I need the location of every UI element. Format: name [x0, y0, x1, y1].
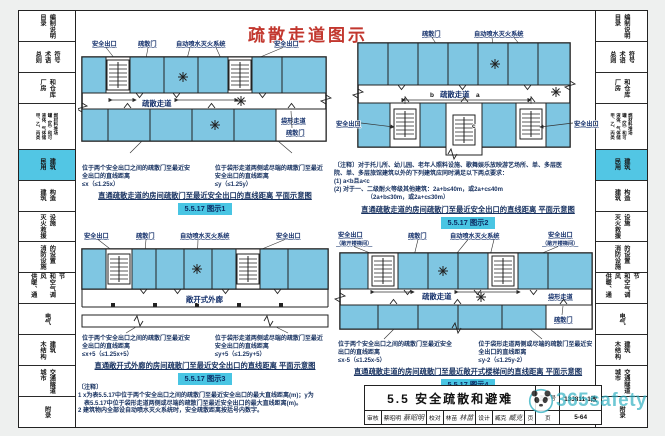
sidebar-tab: 电气 [19, 304, 75, 335]
figure-caption: 直通敞开式外廊的房间疏散门至最近安全出口的直线距离 平面示意图 [78, 361, 332, 371]
sheet-body: 疏散走道图示 安全出口 疏散门 自动喷水灭火系统 安全出口 [76, 11, 595, 427]
sidebar-tab-label: 甲、乙、丙类 液体、气体储 罐（区）和可 燃材料堆场 [610, 113, 634, 139]
sprinkler-icon [178, 72, 188, 82]
sprinkler-label: 自动喷水灭火系统 [474, 30, 524, 38]
sidebar-tab: 城市 交通隧道 [19, 366, 75, 397]
figure-4: 安全出口 （敞开楼梯间） 疏散门 自动喷水灭火系统 安全出口 （敞开楼梯间） [334, 229, 602, 391]
design-name: 臧克臧克 [493, 411, 526, 424]
sidebar-tab-label: 民用 建筑 [612, 158, 631, 170]
evac-door-label: 疏散门 [422, 30, 441, 38]
design-label: 设计 [476, 411, 493, 424]
sidebar-tab: 厂房 和仓库 [19, 73, 75, 104]
figure-4-plan: 安全出口 （敞开楼梯间） 疏散门 自动喷水灭火系统 安全出口 （敞开楼梯间） [334, 229, 602, 341]
design-signature: 臧克 [508, 413, 522, 423]
corridor-label: 疏散走道 [142, 99, 172, 108]
review-label: 审核 [365, 411, 382, 424]
evac-door-label: 疏散门 [554, 316, 573, 324]
sidebar-tab: 木结构 建筑 [19, 335, 75, 366]
sidebar-tab: 灭火救援 设施 [596, 212, 647, 243]
document-frame: 目录 编制说明 总则 术语 符号 厂房 和仓库 甲、乙、丙类 液体、气体储 罐（… [18, 10, 648, 428]
safe-exit-label: 安全出口 [574, 120, 599, 128]
figure-2: 疏散门 自动喷水灭火系统 [334, 27, 602, 229]
figure-3-plan: 安全出口 疏散门 自动喷水灭火系统 安全出口 [78, 229, 332, 335]
sidebar-tab: 目录 编制说明 [596, 11, 647, 42]
sidebar-tab: 厂房 和仓库 [596, 73, 647, 104]
sidebar-tab: 甲、乙、丙类 液体、气体储 罐（区）和可 燃材料堆场 [19, 104, 75, 150]
callout-right: 位于袋形走道两侧或尽端的疏散门至最近安全出口的直线距离 ≤y（≤1.25y） [215, 166, 328, 189]
sprinkler-label: 自动喷水灭火系统 [176, 40, 226, 48]
stair-icon [394, 109, 416, 139]
callout-left: 位于两个安全出口之间的疏散门至最近安全出口的直线距离 ≤x+5（≤1.25x+5… [82, 336, 195, 359]
check-label: 校对 [427, 411, 444, 424]
sprinkler-icon [192, 264, 202, 274]
stair-icon [237, 254, 259, 284]
review-signature: 蔡昭明 [403, 413, 424, 423]
sidebar-tab: 消防设施 的设置 [19, 242, 75, 273]
evac-door-label: 疏散门 [286, 129, 305, 137]
sidebar-tab-label: 供暖、通风 和空气调节 [28, 273, 65, 303]
sidebar-right: 目录 编制说明 总则 术语 符号 厂房 和仓库 甲、乙、丙类 液体、气体储 罐（… [595, 11, 647, 427]
callout-left: 位于两个安全出口之间的疏散门至最近安全出口的直线距离 ≤x（≤1.25x） [82, 166, 195, 189]
figure-caption: 直通疏散走道的房间疏散门至最近安全出口的直线距离 平面示意图 [334, 205, 602, 215]
callout-left: 位于两个安全出口之间的疏散门至最近安全出口的直线距离 ≤x-5（≤1.25x-5… [338, 342, 458, 365]
dead-end-label: 袋形走道 [280, 117, 307, 125]
evac-door-label: 疏散门 [408, 232, 427, 240]
sidebar-tab: 总则 术语 符号 [596, 42, 647, 73]
safe-exit-label: 安全出口 [84, 232, 109, 240]
figure-2-note: 〔注释〕对于托儿所、幼儿园、老年人照料设施、歌舞娱乐放映游艺场所、单、多层医 院… [334, 163, 602, 203]
safe-exit-label: 安全出口 [336, 120, 361, 128]
sidebar-tab-label: 总则 术语 符号 [33, 51, 61, 63]
sidebar-tab-label: 灭火救援 设施 [38, 214, 57, 239]
sidebar-tab-label: 附录 [42, 406, 51, 418]
sprinkler-icon [438, 266, 448, 276]
sidebar-left: 目录 编制说明 总则 术语 符号 厂房 和仓库 甲、乙、丙类 液体、气体储 罐（… [19, 11, 76, 427]
sidebar-tab: 木结构 建筑 [596, 335, 647, 366]
callout-right: 位于袋形走道两侧或尽端的疏散门至最近安全出口的直线距离 ≤y-2（≤1.25y-… [478, 342, 598, 365]
signature-row: 审核 蔡昭明蔡昭明 校对 林苗林苗 设计 臧克臧克 页 [365, 411, 535, 424]
sprinkler-icon [476, 292, 486, 302]
check-name: 林苗林苗 [444, 411, 477, 424]
sidebar-tab: 目录 编制说明 [19, 11, 75, 42]
open-gallery-label: 敞开式外廊 [186, 295, 224, 304]
sidebar-tab: 电气 [596, 304, 647, 335]
corridor-label: 疏散走道 [440, 90, 470, 99]
sidebar-tab: 民用 建筑 [596, 150, 647, 181]
safe-exit-label: 安全出口 [548, 231, 573, 239]
sidebar-tab: 消防设施 的设置 [596, 242, 647, 273]
figure-2-plan: 疏散门 自动喷水灭火系统 [334, 27, 602, 161]
stair-icon [229, 60, 251, 90]
sidebar-tab-label: 电气 [42, 313, 51, 325]
sprinkler-icon [210, 120, 220, 130]
figure-3: 安全出口 疏散门 自动喷水灭火系统 安全出口 [78, 229, 332, 385]
sidebar-tab: 甲、乙、丙类 液体、气体储 罐（区）和可 燃材料堆场 [596, 104, 647, 150]
safe-exit-label: 安全出口 [274, 40, 299, 48]
sidebar-tab-label: 甲、乙、丙类 液体、气体储 罐（区）和可 燃材料堆场 [35, 113, 59, 139]
sidebar-tab-label: 厂房 和仓库 [612, 79, 631, 98]
figure-badge: 5.5.17 图示1 [178, 203, 233, 215]
figure-badge: 5.5.17 图示3 [178, 373, 233, 385]
sidebar-tab-label: 目录 编制说明 [38, 14, 57, 39]
stair-icon [520, 109, 542, 139]
sidebar-tab: 民用 建筑 [19, 150, 75, 181]
sidebar-tab-label: 城市 交通隧道 [38, 369, 57, 394]
evac-door-label: 疏散门 [138, 40, 157, 48]
sprinkler-label: 自动喷水灭火系统 [180, 232, 230, 240]
scanned-page: 目录 编制说明 总则 术语 符号 厂房 和仓库 甲、乙、丙类 液体、气体储 罐（… [0, 0, 665, 436]
sidebar-tab-label: 建筑 构造 [612, 189, 631, 201]
evac-door-label: 疏散门 [136, 232, 155, 240]
section-title: 5.5 安全疏散和避难 [365, 386, 535, 411]
sidebar-tab: 供暖、通风 和空气调节 [596, 273, 647, 304]
sidebar-tab-label: 总则 术语 符号 [608, 51, 636, 63]
callout-right: 位于袋形走道两侧或尽端的疏散门至最近安全出口的直线距离 ≤y+5（≤1.25y+… [215, 336, 328, 359]
safe-exit-label: 安全出口 [276, 232, 301, 240]
stair-icon [107, 60, 129, 90]
figure-1-plan: 安全出口 疏散门 自动喷水灭火系统 安全出口 [78, 37, 332, 165]
open-stair-label: （敞开楼梯间） [336, 239, 372, 247]
sidebar-tab-label: 供暖、通风 和空气调节 [603, 273, 640, 303]
figure-1: 安全出口 疏散门 自动喷水灭火系统 安全出口 [78, 37, 332, 215]
check-signature: 林苗 [459, 413, 473, 423]
figure-badge: 5.5.17 图示2 [441, 217, 496, 229]
sidebar-tab-label: 电气 [617, 313, 626, 325]
stair-icon [372, 256, 394, 286]
figure-caption: 直通疏散走道的房间疏散门至最近敞开式楼梯间的直线距离 平面示意图 [334, 367, 602, 377]
sidebar-tab: 灭火救援 设施 [19, 212, 75, 243]
figure-caption: 直通疏散走道的房间疏散门至最近安全出口的直线距离 平面示意图 [78, 191, 332, 201]
marker-b: b [430, 92, 434, 99]
stair-icon [492, 256, 514, 286]
stair-icon [108, 254, 130, 284]
figure-1-callouts: 位于两个安全出口之间的疏散门至最近安全出口的直线距离 ≤x（≤1.25x） 位于… [78, 166, 332, 189]
sidebar-tab-label: 目录 编制说明 [612, 14, 631, 39]
safe-exit-label: 安全出口 [92, 40, 117, 48]
title-block-left: 5.5 安全疏散和避难 审核 蔡昭明蔡昭明 校对 林苗林苗 设计 臧克臧克 页 [365, 386, 536, 424]
sidebar-tab: 附录 [19, 397, 75, 427]
corridor-label: 疏散走道 [422, 292, 452, 301]
open-stair-label: （敞开楼梯间） [542, 239, 578, 247]
watermark: 365safety [528, 388, 647, 414]
sprinkler-icon [490, 59, 500, 69]
sidebar-tab-label: 消防设施 的设置 [612, 245, 631, 270]
sidebar-tab-label: 消防设施 的设置 [38, 245, 57, 270]
sidebar-tab: 建筑 构造 [19, 181, 75, 212]
sidebar-tab-label: 木结构 建筑 [612, 341, 631, 360]
sheet-notes: 〔注释〕 1 x为表5.5.17中位于两个安全出口之间的疏散门至最近安全出口的最… [78, 385, 366, 416]
review-name: 蔡昭明蔡昭明 [382, 411, 427, 424]
marker-c: c [472, 123, 476, 130]
figure-3-callouts: 位于两个安全出口之间的疏散门至最近安全出口的直线距离 ≤x+5（≤1.25x+5… [78, 336, 332, 359]
sprinkler-icon [236, 96, 246, 106]
sidebar-tab: 总则 术语 符号 [19, 42, 75, 73]
sidebar-tab-label: 木结构 建筑 [38, 341, 57, 360]
sprinkler-icon [551, 87, 561, 97]
sidebar-tab-label: 民用 建筑 [38, 158, 57, 170]
stair-icon [453, 115, 475, 145]
dead-end-label: 袋形走道 [547, 293, 574, 301]
safe-exit-label: 安全出口 [338, 231, 363, 239]
sidebar-tab: 建筑 构造 [596, 181, 647, 212]
marker-a: a [476, 92, 480, 99]
sidebar-tab-label: 灭火救援 设施 [612, 214, 631, 239]
sprinkler-label: 自动喷水灭火系统 [450, 232, 500, 240]
sidebar-tab-label: 厂房 和仓库 [38, 79, 57, 98]
sidebar-tab-label: 建筑 构造 [38, 189, 57, 201]
sidebar-tab: 供暖、通风 和空气调节 [19, 273, 75, 304]
panda-logo-icon [528, 388, 554, 414]
watermark-text: 365safety [556, 390, 647, 412]
figure-4-callouts: 位于两个安全出口之间的疏散门至最近安全出口的直线距离 ≤x-5（≤1.25x-5… [334, 342, 602, 365]
